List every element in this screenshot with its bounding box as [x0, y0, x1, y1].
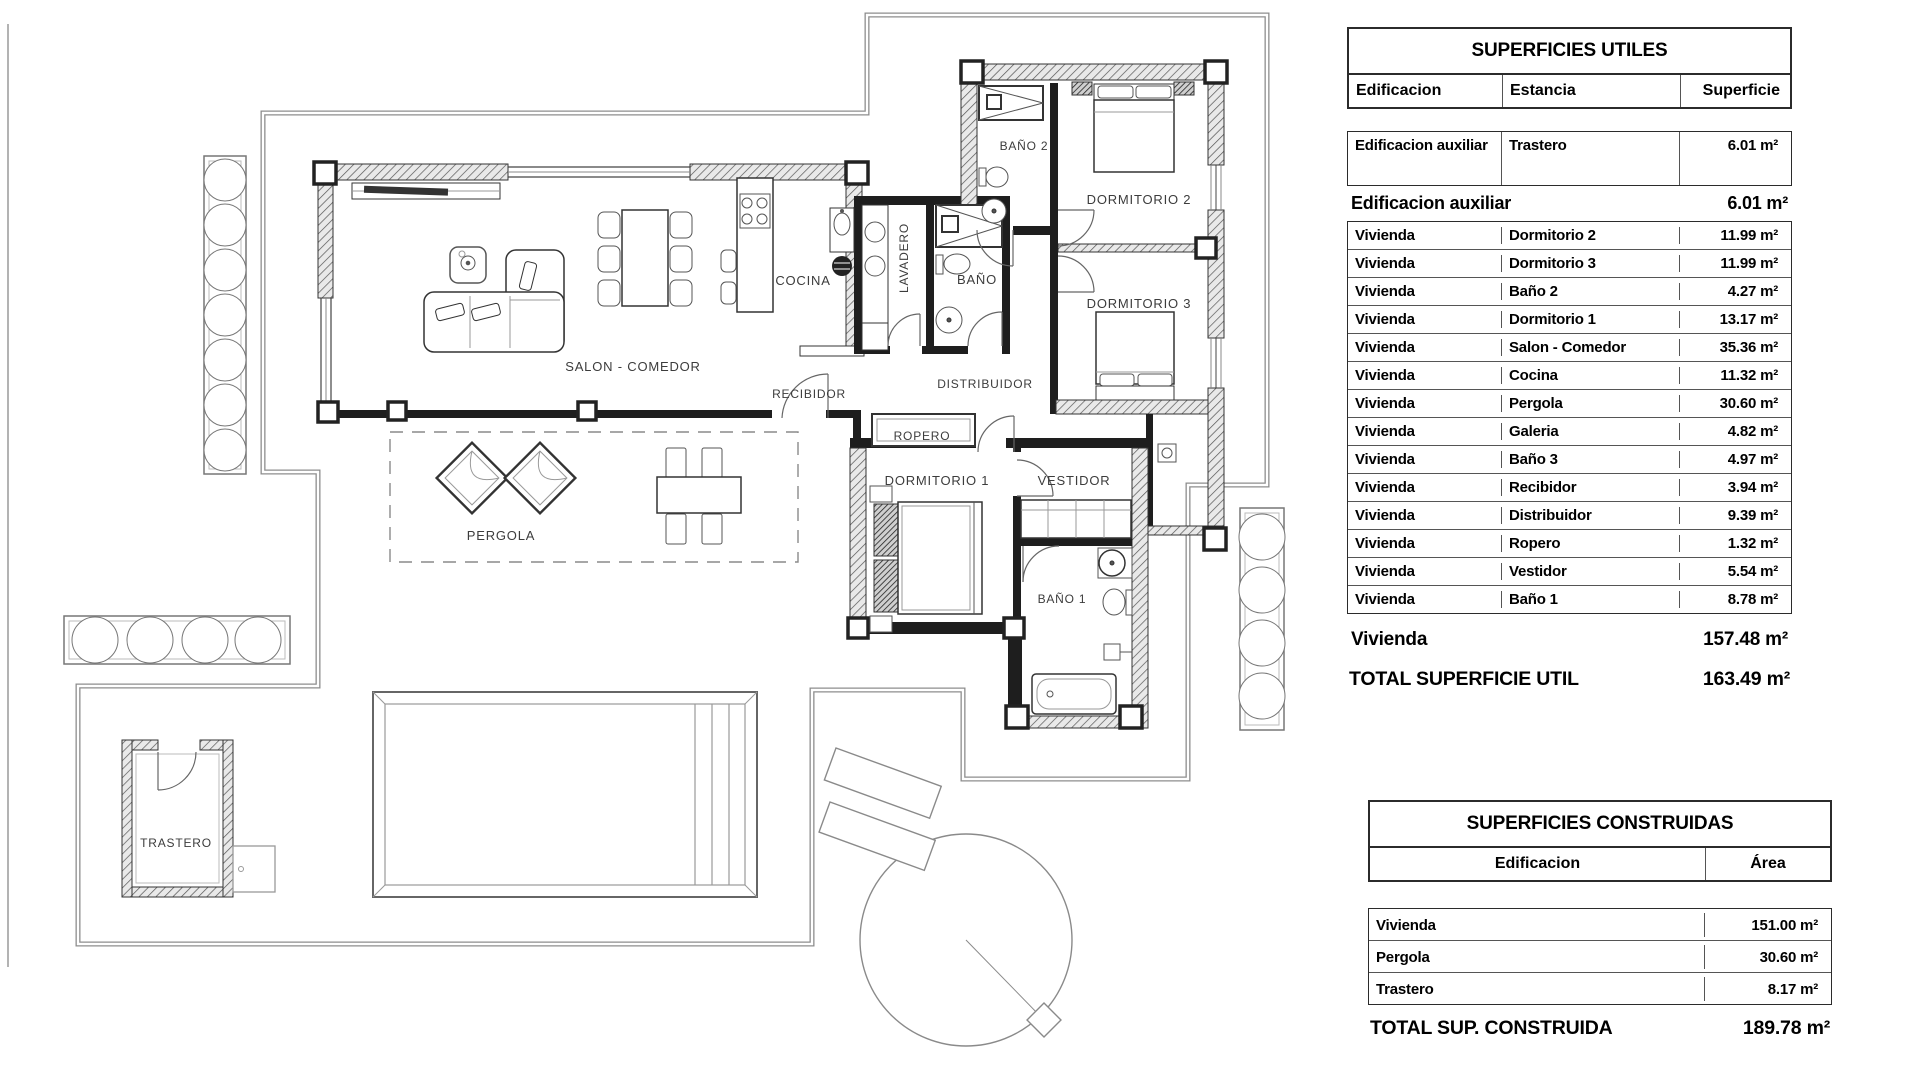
cell-edificacion: Vivienda: [1348, 479, 1501, 496]
entry-planters: [819, 748, 941, 870]
cell-estancia: Baño 3: [1501, 451, 1679, 468]
cell-superficie: 4.27 m²: [1679, 283, 1791, 300]
construidas-title: SUPERFICIES CONSTRUIDAS: [1370, 802, 1830, 848]
cell-edificacion: Vivienda: [1348, 507, 1501, 524]
total-construida-value: 189.78 m²: [1743, 1017, 1830, 1040]
table-row: ViviendaDistribuidor9.39 m²: [1348, 501, 1791, 529]
total-construida-label: TOTAL SUP. CONSTRUIDA: [1370, 1017, 1612, 1040]
table-row: ViviendaGaleria4.82 m²: [1348, 417, 1791, 445]
dining-table-icon: [598, 210, 692, 306]
room-label-salon: SALON - COMEDOR: [565, 359, 701, 374]
table-row: Pergola30.60 m²: [1369, 940, 1831, 972]
room-label-dormitorio3: DORMITORIO 3: [1087, 296, 1192, 311]
cell-edificacion: Vivienda: [1348, 535, 1501, 552]
total-util-label: TOTAL SUPERFICIE UTIL: [1349, 668, 1579, 691]
aux-subtotal-label: Edificacion auxiliar: [1351, 193, 1511, 214]
total-util-row: TOTAL SUPERFICIE UTIL 163.49 m²: [1347, 662, 1792, 696]
total-util-value: 163.49 m²: [1703, 668, 1790, 691]
room-label-dormitorio2: DORMITORIO 2: [1087, 192, 1192, 207]
aux-subtotal-row: Edificacion auxiliar 6.01 m²: [1347, 186, 1792, 221]
table-row: ViviendaSalon - Comedor35.36 m²: [1348, 333, 1791, 361]
cell-estancia: Dormitorio 3: [1501, 255, 1679, 272]
cell-superficie: 4.97 m²: [1679, 451, 1791, 468]
construidas-header-edificacion: Edificacion: [1370, 848, 1705, 880]
aux-estancia: Trastero: [1501, 132, 1679, 185]
table-row: ViviendaBaño 34.97 m²: [1348, 445, 1791, 473]
utiles-header-estancia: Estancia: [1502, 75, 1680, 107]
cell-estancia: Baño 1: [1501, 591, 1679, 608]
sofa-icon: [424, 250, 564, 352]
cell-edificacion: Pergola: [1369, 945, 1704, 969]
table-row: ViviendaBaño 18.78 m²: [1348, 585, 1791, 613]
kitchen-sink-icon: [830, 208, 854, 276]
bath1-fixtures-icon: [1032, 548, 1132, 714]
property-boundary: [8, 15, 1267, 967]
cell-estancia: Dormitorio 1: [1501, 311, 1679, 328]
cell-superficie: 4.82 m²: [1679, 423, 1791, 440]
room-label-bano: BAÑO: [957, 272, 997, 287]
cell-superficie: 11.99 m²: [1679, 255, 1791, 272]
page: SALON - COMEDOR COCINA LAVADERO BAÑO BAÑ…: [0, 0, 1920, 1080]
aux-row: Edificacion auxiliar Trastero 6.01 m²: [1347, 131, 1792, 186]
cell-edificacion: Vivienda: [1348, 367, 1501, 384]
cell-estancia: Ropero: [1501, 535, 1679, 552]
cell-estancia: Distribuidor: [1501, 507, 1679, 524]
bath2-fixtures-icon: [979, 86, 1043, 223]
aux-edificacion: Edificacion auxiliar: [1348, 132, 1501, 185]
cell-edificacion: Vivienda: [1348, 283, 1501, 300]
room-label-ropero: ROPERO: [894, 429, 951, 443]
construidas-rows: Vivienda151.00 m² Pergola30.60 m² Traste…: [1368, 908, 1832, 1005]
table-row: ViviendaRopero1.32 m²: [1348, 529, 1791, 557]
table-row: Trastero8.17 m²: [1369, 972, 1831, 1004]
cell-edificacion: Vivienda: [1348, 255, 1501, 272]
bed1-icon: [870, 486, 982, 632]
pool: [373, 692, 757, 897]
superficies-construidas-table: SUPERFICIES CONSTRUIDAS Edificacion Área…: [1368, 800, 1832, 1045]
wardrobe-icon: [1021, 500, 1131, 538]
floor-plan: SALON - COMEDOR COCINA LAVADERO BAÑO BAÑ…: [0, 0, 1350, 1080]
trastero-building: [122, 740, 275, 897]
tree-row-bottom: [64, 616, 290, 664]
aux-superficie: 6.01 m²: [1679, 132, 1791, 185]
bed3-icon: [1096, 312, 1174, 400]
room-label-cocina: COCINA: [775, 273, 830, 288]
galeria-appliance-icon: [1158, 444, 1176, 462]
laundry-appliances-icon: [862, 205, 888, 350]
room-label-bano2: BAÑO 2: [1000, 139, 1049, 153]
tv-cabinet-icon: [352, 183, 500, 199]
construidas-header-row: Edificacion Área: [1370, 848, 1830, 880]
table-row: ViviendaDormitorio 311.99 m²: [1348, 249, 1791, 277]
room-label-lavadero: LAVADERO: [897, 223, 911, 293]
kitchen-island-icon: [721, 178, 773, 312]
total-construida-row: TOTAL SUP. CONSTRUIDA 189.78 m²: [1368, 1011, 1832, 1045]
room-label-dormitorio1: DORMITORIO 1: [885, 473, 990, 488]
cell-edificacion: Vivienda: [1348, 311, 1501, 328]
room-label-bano1: BAÑO 1: [1038, 592, 1087, 606]
cell-superficie: 9.39 m²: [1679, 507, 1791, 524]
tree-row-left: [204, 156, 246, 474]
table-row: ViviendaRecibidor3.94 m²: [1348, 473, 1791, 501]
cell-edificacion: Vivienda: [1348, 339, 1501, 356]
vivienda-subtotal-label: Vivienda: [1351, 629, 1427, 651]
cell-superficie: 11.99 m²: [1679, 227, 1791, 244]
cell-estancia: Dormitorio 2: [1501, 227, 1679, 244]
vivienda-subtotal-value: 157.48 m²: [1703, 629, 1788, 651]
aux-subtotal-value: 6.01 m²: [1727, 193, 1788, 214]
table-row: Vivienda151.00 m²: [1369, 909, 1831, 940]
table-row: ViviendaPergola30.60 m²: [1348, 389, 1791, 417]
cell-area: 30.60 m²: [1704, 945, 1831, 969]
utiles-header-edificacion: Edificacion: [1349, 75, 1502, 107]
room-label-distribuidor: DISTRIBUIDOR: [937, 377, 1033, 391]
construidas-header-area: Área: [1705, 848, 1830, 880]
cell-superficie: 30.60 m²: [1679, 395, 1791, 412]
cell-edificacion: Vivienda: [1369, 913, 1704, 937]
tree-row-right: [1239, 508, 1285, 730]
cell-superficie: 8.78 m²: [1679, 591, 1791, 608]
cell-superficie: 13.17 m²: [1679, 311, 1791, 328]
lounge-chair-icon: [437, 443, 508, 514]
superficies-utiles-table: SUPERFICIES UTILES Edificacion Estancia …: [1347, 27, 1792, 696]
table-row: ViviendaBaño 24.27 m²: [1348, 277, 1791, 305]
cell-estancia: Baño 2: [1501, 283, 1679, 300]
cell-edificacion: Vivienda: [1348, 451, 1501, 468]
table-row: ViviendaDormitorio 113.17 m²: [1348, 305, 1791, 333]
vivienda-subtotal-row: Vivienda 157.48 m²: [1347, 624, 1792, 656]
room-label-trastero: TRASTERO: [140, 836, 212, 850]
cell-estancia: Pergola: [1501, 395, 1679, 412]
cell-superficie: 11.32 m²: [1679, 367, 1791, 384]
room-label-pergola: PERGOLA: [467, 528, 535, 543]
vivienda-rows: ViviendaDormitorio 211.99 m² ViviendaDor…: [1347, 221, 1792, 614]
cell-estancia: Recibidor: [1501, 479, 1679, 496]
table-row: ViviendaCocina11.32 m²: [1348, 361, 1791, 389]
cell-edificacion: Vivienda: [1348, 423, 1501, 440]
cell-superficie: 3.94 m²: [1679, 479, 1791, 496]
cell-edificacion: Vivienda: [1348, 227, 1501, 244]
room-label-vestidor: VESTIDOR: [1038, 473, 1111, 488]
room-label-recibidor: RECIBIDOR: [772, 387, 846, 401]
cell-superficie: 5.54 m²: [1679, 563, 1791, 580]
cell-area: 151.00 m²: [1704, 913, 1831, 937]
cell-area: 8.17 m²: [1704, 977, 1831, 1001]
table-row: ViviendaDormitorio 211.99 m²: [1348, 222, 1791, 249]
cell-superficie: 35.36 m²: [1679, 339, 1791, 356]
cell-edificacion: Vivienda: [1348, 395, 1501, 412]
cell-estancia: Salon - Comedor: [1501, 339, 1679, 356]
cell-edificacion: Vivienda: [1348, 591, 1501, 608]
utiles-header-superficie: Superficie: [1680, 75, 1790, 107]
utiles-header-row: Edificacion Estancia Superficie: [1349, 75, 1790, 107]
cell-edificacion: Vivienda: [1348, 563, 1501, 580]
lounge-chair-icon: [505, 443, 576, 514]
pergola-area: [390, 432, 798, 562]
table-row: ViviendaVestidor5.54 m²: [1348, 557, 1791, 585]
outdoor-table-icon: [657, 448, 741, 544]
cell-estancia: Vestidor: [1501, 563, 1679, 580]
cell-estancia: Galeria: [1501, 423, 1679, 440]
cell-edificacion: Trastero: [1369, 977, 1704, 1001]
bed2-icon: [1072, 82, 1194, 172]
house-walls: [314, 61, 1227, 728]
stove-icon: [450, 247, 486, 283]
round-patio: [860, 834, 1072, 1046]
cell-estancia: Cocina: [1501, 367, 1679, 384]
cell-superficie: 1.32 m²: [1679, 535, 1791, 552]
utiles-title: SUPERFICIES UTILES: [1349, 29, 1790, 75]
